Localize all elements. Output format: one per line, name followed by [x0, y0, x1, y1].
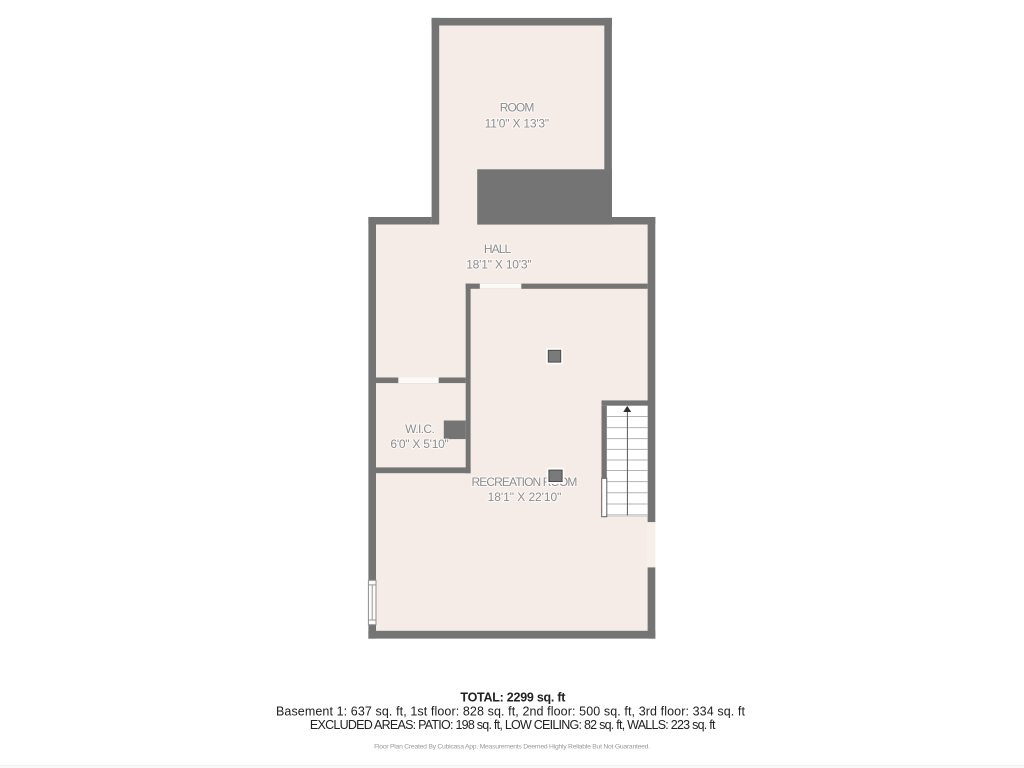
svg-text:ROOM: ROOM	[500, 101, 535, 115]
svg-text:EXCLUDED AREAS: PATIO: 198 sq.: EXCLUDED AREAS: PATIO: 198 sq. ft, LOW C…	[310, 718, 716, 732]
svg-text:Floor Plan Created By Cubicasa: Floor Plan Created By Cubicasa App. Meas…	[374, 744, 650, 751]
svg-text:TOTAL: 2299 sq. ft: TOTAL: 2299 sq. ft	[460, 690, 566, 704]
svg-text:W.I.C.: W.I.C.	[405, 422, 434, 436]
svg-text:18'1" X 22'10": 18'1" X 22'10"	[488, 490, 562, 504]
svg-text:6'0" X 5'10": 6'0" X 5'10"	[390, 437, 448, 451]
svg-text:Basement 1: 637 sq. ft, 1st fl: Basement 1: 637 sq. ft, 1st floor: 828 s…	[276, 704, 746, 718]
svg-text:18'1" X 10'3": 18'1" X 10'3"	[466, 258, 531, 272]
svg-text:11'0" X 13'3": 11'0" X 13'3"	[485, 116, 549, 130]
svg-text:HALL: HALL	[484, 242, 512, 256]
